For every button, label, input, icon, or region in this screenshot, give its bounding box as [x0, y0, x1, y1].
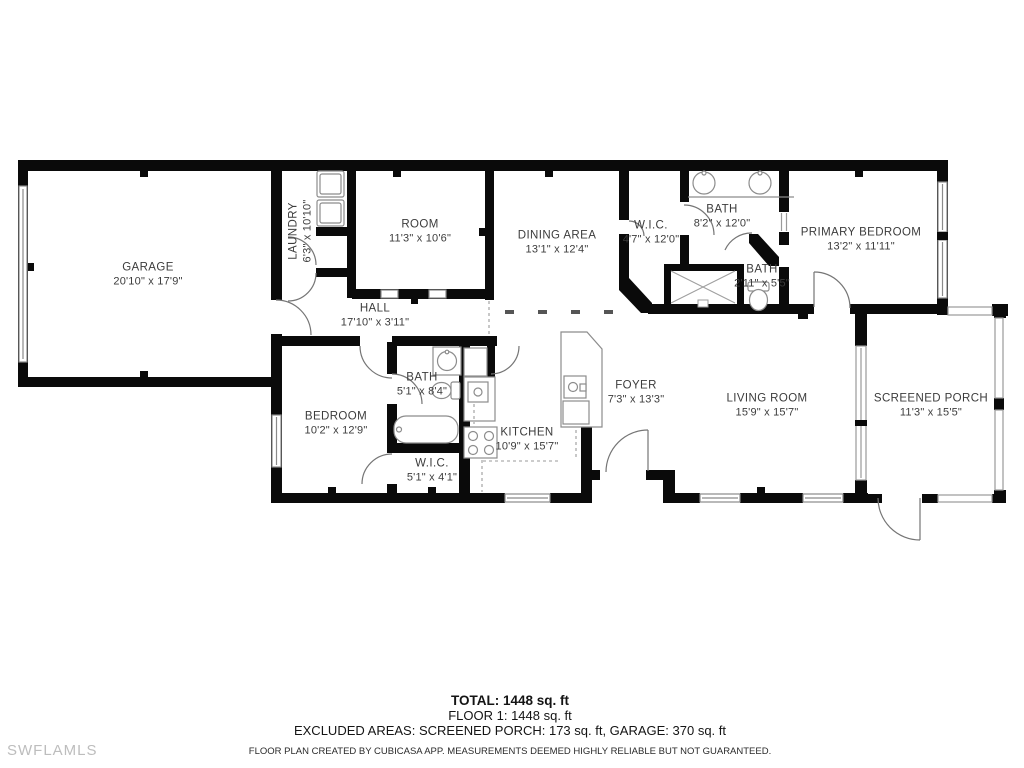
room-dims: 10'9" x 15'7": [496, 440, 559, 454]
room-name: BEDROOM: [305, 411, 368, 425]
room-dims: 8'2" x 12'0": [694, 217, 751, 231]
room-name: ROOM: [389, 219, 451, 233]
room-name: DINING AREA: [518, 230, 597, 244]
room-name: KITCHEN: [496, 427, 559, 441]
stove-icon: [464, 427, 497, 458]
kitchen-counter: [464, 377, 495, 421]
room-dims: 11'3" x 15'5": [874, 406, 988, 420]
room-dims: 13'2" x 11'11": [801, 240, 922, 254]
room-name: FOYER: [608, 380, 665, 394]
total-area: TOTAL: 1448 sq. ft: [0, 694, 1020, 708]
room-label-dining-area: DINING AREA 13'1" x 12'4": [518, 230, 597, 257]
room-label-laundry: LAUNDRY 6'3" x 10'10": [288, 200, 315, 263]
room-name: SCREENED PORCH: [874, 393, 988, 407]
room-name: GARAGE: [113, 262, 182, 276]
room-name: BATH: [734, 264, 790, 278]
room-name: LAUNDRY: [288, 200, 302, 263]
room-label-bath-hall: BATH 5'1" x 8'4": [397, 372, 447, 399]
area-summary: TOTAL: 1448 sq. ft FLOOR 1: 1448 sq. ft …: [0, 694, 1020, 758]
room-dims: 6'3" x 10'10": [301, 200, 315, 263]
room-dims: 17'10" x 3'11": [341, 316, 409, 330]
excluded-areas: EXCLUDED AREAS: SCREENED PORCH: 173 sq. …: [0, 724, 1020, 738]
room-label-kitchen: KITCHEN 10'9" x 15'7": [496, 427, 559, 454]
room-dims: 7'3" x 13'3": [608, 393, 665, 407]
room-label-screened-porch: SCREENED PORCH 11'3" x 15'5": [874, 393, 988, 420]
room-label-bath-small: BATH 2'11" x 5'5": [734, 264, 790, 291]
room-dims: 13'1" x 12'4": [518, 243, 597, 257]
floor-area: FLOOR 1: 1448 sq. ft: [0, 709, 1020, 723]
room-dims: 15'9" x 15'7": [726, 406, 807, 420]
room-name: PRIMARY BEDROOM: [801, 227, 922, 241]
room-label-bedroom: BEDROOM 10'2" x 12'9": [305, 411, 368, 438]
room-dims: 4'7" x 12'0": [623, 233, 680, 247]
room-label-wic-primary: W.I.C. 4'7" x 12'0": [623, 220, 680, 247]
shower-icon: [671, 271, 735, 307]
room-label-room: ROOM 11'3" x 10'6": [389, 219, 451, 246]
room-dims: 10'2" x 12'9": [305, 424, 368, 438]
room-name: W.I.C.: [407, 458, 457, 472]
double-sink-icon: [688, 171, 794, 197]
floor-plan-drawing: [0, 0, 1024, 768]
room-name: BATH: [397, 372, 447, 386]
screen-walls: [782, 213, 1004, 502]
bathtub-icon: [394, 416, 458, 443]
room-label-living-room: LIVING ROOM 15'9" x 15'7": [726, 393, 807, 420]
room-dims: 5'1" x 4'1": [407, 471, 457, 485]
room-label-primary-bedroom: PRIMARY BEDROOM 13'2" x 11'11": [801, 227, 922, 254]
room-dims: 5'1" x 8'4": [397, 385, 447, 399]
room-label-hall: HALL 17'10" x 3'11": [341, 303, 409, 330]
watermark: SWFLAMLS: [7, 742, 98, 759]
disclaimer: FLOOR PLAN CREATED BY CUBICASA APP. MEAS…: [0, 746, 1020, 758]
room-name: HALL: [341, 303, 409, 317]
fridge-icon: [464, 348, 487, 376]
room-dims: 2'11" x 5'5": [734, 277, 790, 291]
washer-dryer-icon: [317, 171, 344, 226]
room-dims: 20'10" x 17'9": [113, 275, 182, 289]
room-label-bath-primary: BATH 8'2" x 12'0": [694, 204, 751, 231]
room-name: BATH: [694, 204, 751, 218]
floor-plan-page: GARAGE 20'10" x 17'9" LAUNDRY 6'3" x 10'…: [0, 0, 1024, 768]
room-label-garage: GARAGE 20'10" x 17'9": [113, 262, 182, 289]
room-label-wic-bedroom: W.I.C. 5'1" x 4'1": [407, 458, 457, 485]
room-name: W.I.C.: [623, 220, 680, 234]
ceiling-break-dots: [505, 310, 613, 314]
room-label-foyer: FOYER 7'3" x 13'3": [608, 380, 665, 407]
kitchen-island: [561, 332, 602, 427]
room-name: LIVING ROOM: [726, 393, 807, 407]
room-dims: 11'3" x 10'6": [389, 232, 451, 246]
